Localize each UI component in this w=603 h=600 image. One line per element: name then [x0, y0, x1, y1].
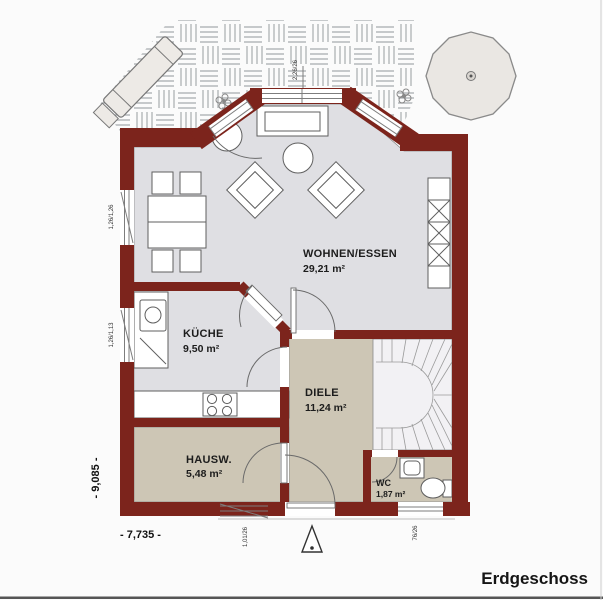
page-title: Erdgeschoss	[481, 569, 588, 588]
toilet-icon	[421, 478, 452, 498]
kitchen-counter-bottom	[134, 391, 289, 418]
side-table	[283, 143, 313, 173]
dimension-height: - 9,085 -	[90, 457, 102, 498]
dimension-width: - 7,735 -	[120, 529, 161, 541]
annotation-window-top: 2,26/26	[293, 59, 299, 80]
room-name: HAUSW.	[186, 454, 232, 466]
kitchen-counter-left	[134, 292, 168, 368]
floor-plan-drawing: WOHNEN/ESSEN 29,21 m² KÜCHE 9,50 m² DIEL…	[0, 0, 603, 600]
room-area: 29,21 m²	[303, 263, 346, 275]
shelf-unit	[428, 178, 450, 288]
room-name: KÜCHE	[183, 327, 224, 340]
room-area: 11,24 m²	[305, 402, 347, 414]
annotation-window-left-lower: 1,26/1,13	[109, 322, 115, 348]
room-area: 5,48 m²	[186, 468, 223, 480]
wc-sink	[400, 458, 424, 478]
stair-area	[373, 339, 452, 450]
annotation-entry-door: 1,01/26	[243, 526, 249, 547]
annotation-window-left-upper: 1,26/1,26	[109, 204, 115, 230]
sideboard	[257, 106, 328, 136]
room-name: DIELE	[305, 387, 339, 399]
annotation-window-wc: 76/26	[413, 525, 419, 541]
window-wc	[398, 502, 443, 516]
floor-plan-page: WOHNEN/ESSEN 29,21 m² KÜCHE 9,50 m² DIEL…	[0, 0, 603, 600]
window-left-lower	[120, 308, 134, 362]
room-name: WC	[376, 478, 391, 488]
bottom-border	[0, 597, 603, 600]
window-left-upper	[120, 190, 134, 245]
room-area: 1,87 m²	[376, 489, 405, 499]
room-area: 9,50 m²	[183, 343, 220, 355]
right-border	[601, 0, 602, 600]
room-name: WOHNEN/ESSEN	[303, 248, 397, 260]
